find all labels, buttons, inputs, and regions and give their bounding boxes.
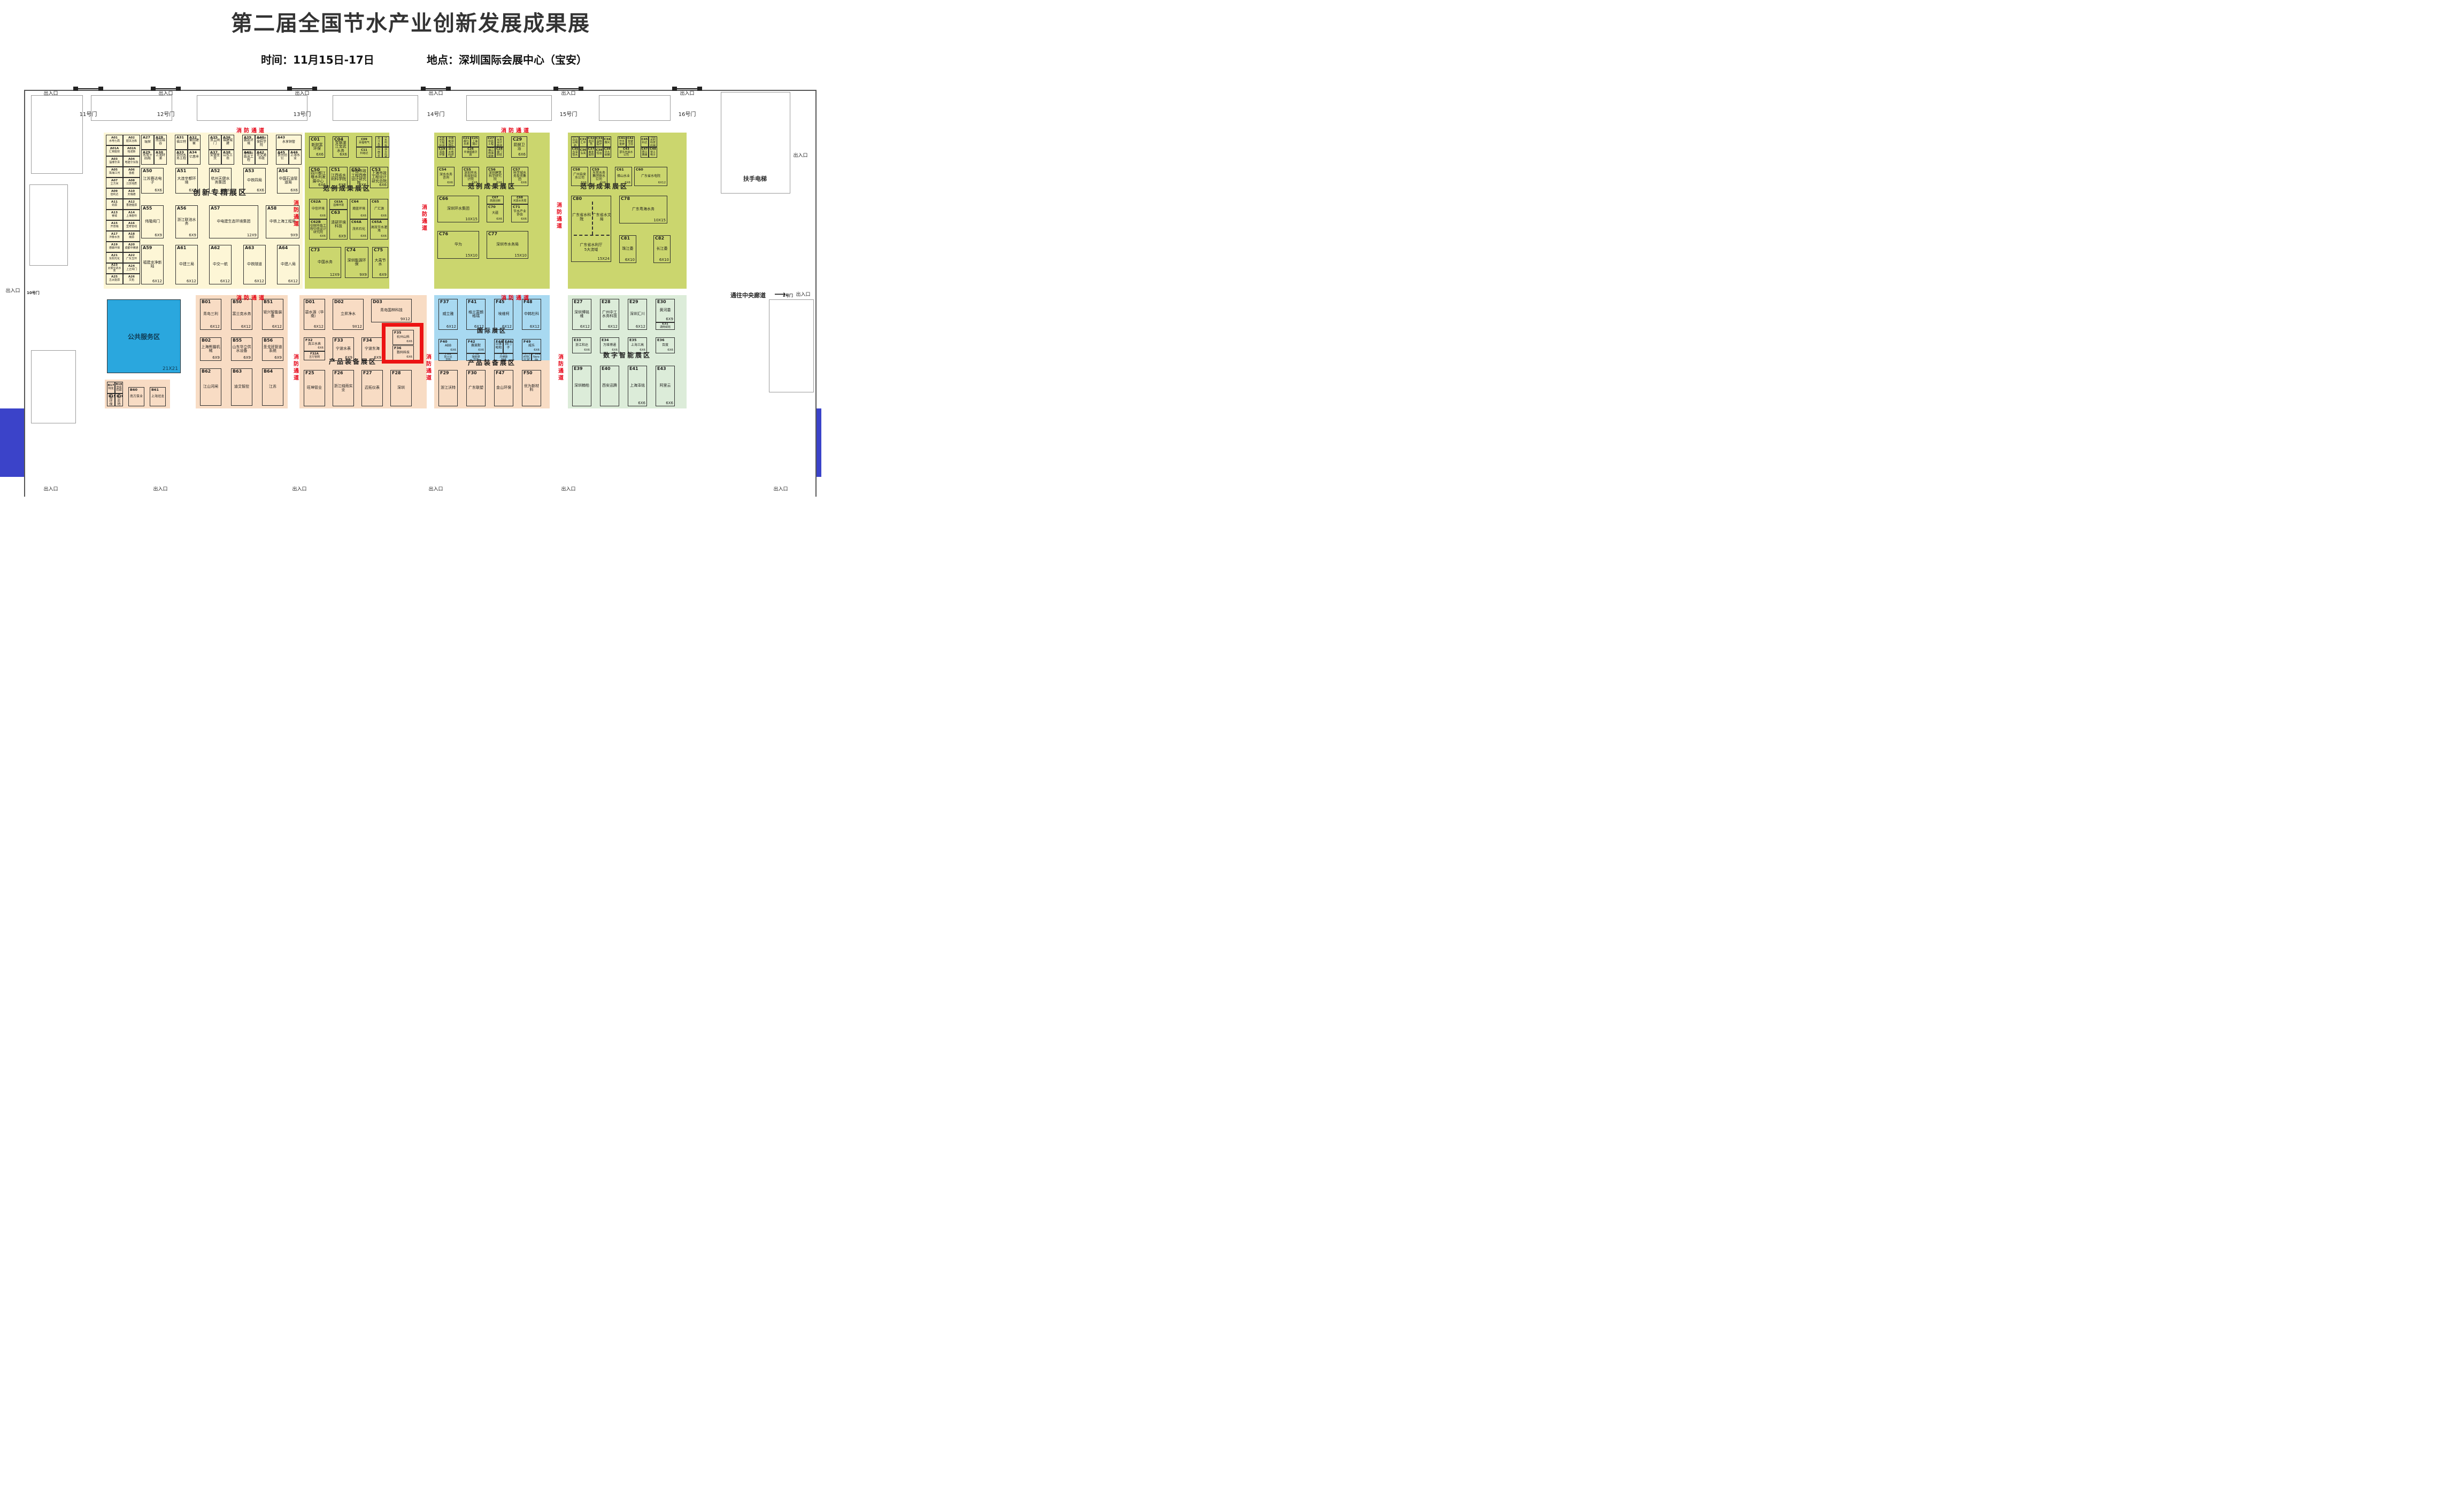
booth-company: 日本昭和 (495, 343, 503, 350)
gate-label: 11号门 (80, 110, 97, 118)
booth-company: 江西省水利科学院 (330, 174, 347, 182)
booth-company: 淏华玛格 (383, 148, 389, 158)
booth-C11: C11科裕达 (356, 147, 372, 158)
booth-company: 科裕达 (359, 152, 368, 155)
booth-company: 宁波东海 (364, 347, 380, 351)
booth-id: B63 (233, 369, 242, 374)
booth-company: 迪艾智控 (234, 385, 250, 389)
booth-F48: F48中韩杜科6X12 (522, 299, 541, 330)
booth-id: A57 (211, 206, 220, 211)
booth-B61: B61上海冠龙 (150, 387, 166, 406)
booth-company: 中恩工程 (487, 141, 495, 146)
booth-id: C60 (636, 168, 643, 172)
booth-C53: C53上海市政工程设计研究总院6X6 (370, 167, 388, 188)
booth-id: F40 (440, 340, 448, 344)
booth-company: 广东粤海水务 (632, 207, 655, 211)
booth-size: 6X6 (584, 349, 590, 352)
booth-id: F46A (505, 340, 513, 344)
booth-B20: B20爱乐尼特 (115, 393, 123, 406)
booth-id: C51 (331, 168, 340, 172)
booth-size: 6X6 (155, 189, 162, 192)
booth-A46: A46上海水业 (289, 150, 302, 165)
booth-id: E33 (574, 338, 581, 342)
booth-id: B02 (202, 338, 211, 343)
booth-size: 6X6 (316, 153, 324, 157)
booth-F45A: F45AACTUATECH SPA (522, 353, 532, 361)
booth-company: 恒运 (596, 152, 602, 155)
booth-size: 12X9 (247, 234, 257, 237)
booth-company: 旺坤管业 (306, 386, 322, 390)
booth-company: 鹏凯环境 (243, 139, 255, 146)
booth-size: 6X9 (212, 356, 220, 360)
booth-company: 格兰富朗格瑞 (467, 311, 485, 319)
booth-F40: F40ABB6X6 (438, 339, 458, 353)
booth-id: C66 (439, 197, 448, 201)
booth-E30: E30黄河委6X9 (656, 299, 675, 322)
booth-company: 浙江纯雨实业 (333, 384, 353, 392)
booth-company: 水电十四局 (142, 154, 153, 161)
booth-size: 6X6 (534, 349, 540, 352)
booth-id: A46 (290, 151, 298, 155)
booth-C46: C46河南水利科技应用中心 (649, 136, 657, 147)
booth-company: 金山环保 (496, 386, 512, 390)
booth-size: 6X9 (243, 356, 251, 360)
booth-size: 6X6 (667, 349, 673, 352)
booth-A50: A50江苏赛达电子6X6 (141, 168, 164, 194)
booth-company: 东阳光化 (109, 258, 120, 260)
booth-id: E40 (602, 367, 611, 371)
booth-company: 中建八局 (280, 263, 296, 266)
booth-company: 瀚蓝环境 (352, 207, 366, 211)
booth-size: 6X6 (518, 153, 526, 157)
booth-A22: A22广东玉环 (123, 252, 140, 263)
structure-block (31, 350, 76, 423)
booth-company: 西安迅腾 (602, 384, 618, 388)
booth-company: 深圳汇川 (629, 312, 645, 316)
f35-highlight-box (382, 323, 423, 364)
booth-company: 科学城水务投资集团 (512, 172, 528, 182)
booth-F50: F50优为新材料 (522, 370, 541, 406)
booth-size: 6X6 (381, 215, 387, 218)
booth-company: 大连宇都环境 (176, 177, 197, 185)
booth-company: 劲源 (111, 204, 118, 207)
booth-C70: C70大疆6X6 (487, 204, 504, 222)
booth-company: 中国石油管道局 (278, 177, 299, 185)
booth-company: 香驰健源 (126, 204, 137, 207)
booth-B60: B60南方泵业 (128, 387, 144, 406)
structure-block (333, 95, 418, 121)
booth-company: 弘禹 (580, 152, 586, 155)
booth-id: F37 (440, 300, 449, 304)
fire-lane-label: 消防通道 (501, 294, 531, 302)
event-venue: 地点：深圳国际会展中心（宝安） (427, 51, 587, 67)
booth-id: C59 (592, 168, 599, 172)
booth-B55: B55山东华立供水设备6X9 (231, 337, 252, 361)
booth-id: C04 (334, 137, 343, 142)
booth-company: 青岛国林科技 (380, 308, 403, 312)
booth-A01A: A01A汇锦能效 (106, 145, 123, 156)
booth-company: 科达 (641, 142, 648, 144)
booth-C18: C18电建中南勘测设计研究院 (446, 136, 456, 147)
booth-company: 深圳市水务局 (496, 243, 519, 246)
booth-C75: C75大禹节水6X9 (372, 247, 388, 278)
booth-company: 开普瑞 (110, 226, 119, 228)
booth-A64: A64中建八局6X12 (277, 245, 299, 284)
booth-E33: E33浙江和达6X6 (572, 337, 591, 353)
booth-company: 古太能源 (109, 279, 120, 282)
booth-company: 河南水利科技应用中心 (649, 136, 657, 147)
booth-C66: C66深圳环水集团10X15 (437, 196, 479, 222)
booth-id: A34 (189, 151, 197, 155)
side-label: 通往中央廊道 (730, 291, 766, 299)
booth-id: D01 (305, 300, 315, 304)
booth-company: 上海泽铭 (629, 384, 645, 388)
booth-F30: F30广东联塑 (466, 370, 486, 406)
booth-company: 埃维柯 (498, 312, 510, 316)
booth-B18: B18登福机械 (115, 382, 123, 393)
booth-F26: F26浙江纯雨实业 (333, 370, 354, 406)
booth-company: 南京磁谷 (155, 139, 166, 146)
booth-company: 五行管网 (309, 356, 320, 359)
booth-id: C50 (311, 168, 320, 172)
booth-id: C52 (351, 168, 360, 172)
booth-company: 金越 (128, 172, 135, 175)
booth-C42: C42安彼卫浴 (626, 136, 635, 147)
c80-part: 广东省水科院 (572, 213, 592, 222)
booth-C35: C35东深智水 (571, 147, 579, 158)
booth-size: 6X10 (625, 258, 635, 262)
c80-divider (574, 235, 610, 236)
booth-company: 开平金牌 (618, 141, 626, 146)
booth-D01: D01碧水源（华南）6X12 (304, 299, 325, 330)
booth-company: 浙江沃特 (440, 386, 456, 390)
booth-size: 6X6 (666, 402, 673, 405)
booth-C20: C20湖北水电科研院 (446, 147, 456, 158)
booth-A31: A31福兰特 (175, 135, 188, 150)
booth-company: 黑龙江水研院 (376, 136, 382, 147)
booth-company: 特克 (107, 388, 114, 390)
booth-company: 钜兴智能装备 (263, 311, 283, 319)
booth-C65A: C65A高效节水灌溉6X6 (370, 219, 388, 240)
booth-F49: F49威乐6X6 (522, 339, 541, 353)
booth-id: C75 (374, 248, 383, 252)
fire-lane-label: 消防通道 (420, 204, 428, 232)
booth-A61: A61中建三局6X12 (175, 245, 198, 284)
booth-id: A61 (177, 246, 186, 250)
booth-A27: A27瑞探 (141, 135, 154, 150)
booth-size: 9X9 (290, 234, 298, 237)
booth-id: A39 (244, 136, 251, 140)
booth-size: 12X9 (330, 273, 340, 277)
booth-size: 6X6 (478, 349, 484, 352)
booth-id: A30 (156, 151, 163, 155)
booth-size: 6X9 (338, 235, 346, 238)
booth-E27: E27深圳博铭维6X12 (572, 299, 591, 330)
booth-C45: C45科达 (641, 136, 649, 147)
booth-company: 淄博华泽 (109, 161, 120, 164)
booth-C47: C47晋江西峰 (641, 147, 649, 158)
booth-company: 西门子 (504, 343, 513, 350)
booth-A36: A36福建城建 (221, 135, 234, 150)
booth-A16: A16里奇管线 (123, 220, 140, 231)
booth-E40: E40西安迅腾 (600, 366, 619, 406)
booth-company: 福兰特 (176, 141, 187, 144)
booth-A13: A13睿威 (106, 210, 123, 220)
booth-A38: A38山东三岳 (221, 150, 234, 165)
booth-id: F33 (334, 338, 343, 343)
booth-A30: A30上海轩浦 (154, 150, 167, 165)
booth-company: 广州中工水务科技 (600, 311, 619, 319)
booth-company: 百特医疗 (596, 141, 603, 146)
booth-C32: C32蓝月亮 (587, 136, 595, 147)
booth-company: 华大纵横 (604, 151, 611, 157)
booth-id: E27 (574, 300, 583, 304)
booth-company: 立方米 (110, 183, 119, 186)
exit-label: 出入口 (773, 485, 788, 492)
booth-id: E34 (602, 338, 609, 342)
booth-C21: C21都匀水表 (462, 136, 471, 147)
booth-company: 富兰克水务 (232, 312, 252, 316)
booth-C27A: C27A广州水务设计勘测院 (495, 136, 504, 147)
booth-id: C73 (311, 248, 320, 252)
booth-company: 深圳能源环保 (345, 259, 368, 267)
booth-company: 真兰水表 (307, 343, 321, 346)
booth-F41: F41格兰富朗格瑞6X12 (466, 299, 486, 330)
public-service-label: 公共服务区 (128, 332, 160, 341)
booth-E43: E43阿里云6X6 (656, 366, 675, 406)
gate-label: 12号门 (157, 110, 175, 118)
booth-company: 沣泰水务 (109, 236, 120, 239)
c80-part: 广东省水利厅 (572, 243, 611, 247)
booth-C30: C30白云山制药 (571, 136, 579, 147)
fire-lane-label: 消防通道 (501, 126, 531, 134)
booth-C81: C81珠江委6X10 (619, 235, 636, 263)
booth-id: A31 (176, 136, 184, 140)
booth-id: C53 (372, 168, 381, 172)
booth-company: 亿惠丰 (189, 156, 199, 159)
booth-id: A41 (244, 151, 251, 155)
booth-id: C82 (655, 236, 664, 241)
booth-A10: A10天瑞德 (123, 188, 140, 199)
booth-id: E35 (629, 338, 637, 342)
booth-company: 湖北水电科研院 (447, 148, 455, 158)
booth-company: 宝钢湛江宝武水务 (333, 141, 348, 153)
zone-label: 创新专精展区 (193, 187, 248, 198)
booth-C31: C31汇中 (579, 136, 587, 147)
booth-A32: A32衡阳建衡 (188, 135, 201, 150)
booth-F32: F32真兰水表6X6 (304, 337, 325, 351)
booth-company: 中交一航 (212, 263, 228, 266)
booth-company: 珠海江河 (109, 172, 120, 175)
booth-E28: E28广州中工水务科技6X12 (600, 299, 619, 330)
booth-C60: C60广东省水电院6X12 (634, 167, 667, 186)
booth-C48: C48常工电子 (649, 147, 657, 158)
booth-company: 茂名石化 (352, 228, 366, 231)
booth-company: 广东省水电院 (641, 175, 661, 178)
booth-id: D03 (373, 300, 382, 304)
booth-company: 常工电子 (649, 151, 657, 157)
booth-id: C65 (372, 200, 379, 204)
booth-company: 广汇源 (374, 207, 384, 211)
booth-company: 深水水务咨询 (438, 173, 454, 180)
booth-id: B55 (233, 338, 242, 343)
booth-company: 威乐 (528, 344, 535, 348)
booth-company: 箭牌卫浴 (512, 143, 527, 151)
booth-company: 深圳博铭维 (573, 311, 591, 319)
booth-company: 浙江和达 (575, 344, 589, 347)
booth-C15: C15山西华青 (375, 147, 382, 158)
booth-id: A51 (177, 169, 186, 173)
booth-id: F27 (363, 371, 372, 375)
booth-A59: A59福建龙净新陆6X12 (141, 245, 164, 284)
booth-company: 上海熊猫机械 (201, 345, 221, 353)
booth-A12: A12香驰健源 (123, 199, 140, 210)
booth-id: C54 (439, 168, 446, 172)
zone-label: 产品装备展区 (468, 358, 516, 367)
booth-company: 安彼卫浴 (627, 141, 634, 146)
booth-id: F41 (468, 300, 477, 304)
booth-id: E43 (657, 367, 666, 371)
booth-id: A56 (177, 206, 186, 211)
booth-id: F47 (496, 371, 505, 375)
booth-C01: C01新财富环保6X6 (309, 136, 325, 158)
booth-F32A: F32A五行管网 (304, 351, 325, 360)
booth-company: 中建三局 (179, 263, 195, 266)
booth-id: A40 (257, 136, 264, 140)
booth-company: 中韩杜科 (523, 312, 540, 316)
booth-company: 清研环境科技 (330, 221, 347, 229)
exit-label: 出入口 (428, 90, 443, 97)
booth-id: C64A (351, 220, 361, 224)
booth-company: 衡阳建衡 (188, 139, 200, 146)
booth-F37: F37威立雅6X12 (438, 299, 458, 330)
booth-company: Nereda (532, 356, 541, 361)
zone-label: 范例成果展区 (468, 182, 516, 191)
booth-company: 上海金科 (126, 215, 137, 218)
booth-size: 6X6 (381, 235, 387, 238)
booth-company: 山东三岳 (222, 154, 234, 161)
booth-C76: C76华为15X10 (437, 231, 479, 259)
booth-size: 9X12 (352, 325, 362, 329)
booth-company: 大疆 (491, 212, 499, 215)
booth-A15: A15开普瑞 (106, 220, 123, 231)
floorplan-poster: 第二届全国节水产业创新发展成果展 时间：11月15日-17日 地点：深圳国际会展… (0, 0, 821, 497)
booth-size: 6X6 (450, 349, 456, 352)
booth-id: C56 (488, 168, 496, 172)
booth-id: E28 (602, 300, 611, 304)
booth-id: F34 (363, 338, 372, 343)
fire-lane-label: 消防通道 (556, 354, 564, 382)
booth-id: A27 (143, 136, 150, 140)
booth-company: 郑州水务工程 (175, 154, 187, 161)
booth-size: 6X12 (636, 325, 645, 329)
booth-E41: E41上海泽铭6X6 (628, 366, 647, 406)
structure-block (31, 95, 83, 174)
booth-size: 6X12 (608, 325, 618, 329)
booth-A17: A17沣泰水务 (106, 231, 123, 242)
gate-label: 16号门 (679, 110, 696, 118)
exit-label: 出入口 (43, 485, 58, 492)
booth-id: A63 (245, 246, 254, 250)
booth-A18: A18瀚源 (123, 231, 140, 242)
booth-company: 韶关冶炼 (126, 140, 137, 143)
booth-C63: C63清研环境科技6X9 (329, 210, 348, 240)
booth-id: C62A (311, 200, 321, 204)
booth-id: C70 (488, 205, 496, 209)
booth-company: 广州水务设计勘测院 (496, 136, 503, 147)
booth-size: 6X12 (530, 325, 540, 329)
booth-C77: C77深圳市水务局15X10 (487, 231, 528, 259)
booth-company: 中灌顺鑫华霖 (463, 151, 479, 157)
booth-B64: B64江苏 (262, 368, 283, 406)
booth-company: 江苏赛达电子 (142, 177, 163, 185)
gate-label: 14号门 (427, 110, 445, 118)
exit-label: 出入口 (428, 485, 443, 492)
booth-C64A: C64A茂名石化6X6 (350, 219, 368, 240)
booth-id: A45 (278, 151, 285, 155)
booth-id: A55 (143, 206, 152, 211)
booth-company: 宁波水表 (335, 347, 351, 351)
booth-company: 赛莱默 (471, 344, 481, 348)
booth-company: 电建中南勘测设计研究院 (447, 136, 455, 147)
booth-F42: F42赛莱默6X6 (466, 339, 486, 353)
booth-id: B60 (130, 388, 137, 392)
booth-F46: F46日本昭和 (494, 339, 503, 353)
booth-id: C78 (621, 197, 630, 201)
booth-company: 万维博通 (603, 344, 617, 347)
booth-id: C57 (513, 168, 520, 172)
booth-id: E39 (574, 367, 583, 371)
booth-company: 贵州创亿 (276, 154, 288, 161)
fire-lane-label: 消防通道 (555, 202, 563, 230)
booth-A14: A14上海金科 (123, 210, 140, 220)
booth-size: 15X10 (514, 254, 527, 258)
booth-size: 6X12 (255, 280, 264, 283)
booth-company: 迈拓仪表 (364, 386, 380, 390)
booth-size: 9X12 (401, 318, 410, 321)
booth-A55: A55伟隆阀门6X9 (141, 205, 164, 238)
booth-company: 深圳建筑科学研究院 (487, 172, 503, 182)
booth-company: 中国市政工程中南设计研究院 (310, 225, 327, 235)
booth-C19: C19润蓝环保 (437, 147, 446, 158)
booth-A45: A45贵州创亿 (276, 150, 289, 165)
fire-lane-label: 消防通道 (424, 354, 432, 382)
booth-B02: B02上海熊猫机械6X9 (200, 337, 221, 361)
booth-A06: A06金越 (123, 167, 140, 177)
booth-company: 厦门四信 (496, 151, 503, 157)
booth-id: C61 (617, 168, 624, 172)
booth-company: 东深智水 (572, 151, 579, 157)
booth-company: 江苏地质 (126, 183, 137, 186)
zone-label: 产品装备展区 (329, 357, 377, 366)
booth-company: 天瑞德 (127, 194, 136, 196)
structure-block (197, 95, 307, 121)
booth-id: A64 (279, 246, 288, 250)
booth-id: B19 (109, 395, 115, 398)
side-label: 扶手电梯 (743, 174, 767, 183)
booth-size: 6X6 (257, 189, 264, 192)
booth-company: 中铁四局 (247, 179, 263, 182)
booth-company: 四川都江堰水利发展中心 (310, 172, 327, 183)
side-label: 10号门 (27, 290, 40, 296)
booth-id: A32 (189, 136, 197, 140)
booth-company: ABB (444, 344, 452, 348)
booth-company: 中电建生态环境集团 (217, 220, 251, 223)
booth-company: 上海水业 (289, 154, 301, 161)
booth-company: 江苏 (268, 385, 277, 389)
booth-company: 瀚源 (128, 236, 135, 239)
booth-company: 浙江联池水务 (176, 218, 197, 226)
